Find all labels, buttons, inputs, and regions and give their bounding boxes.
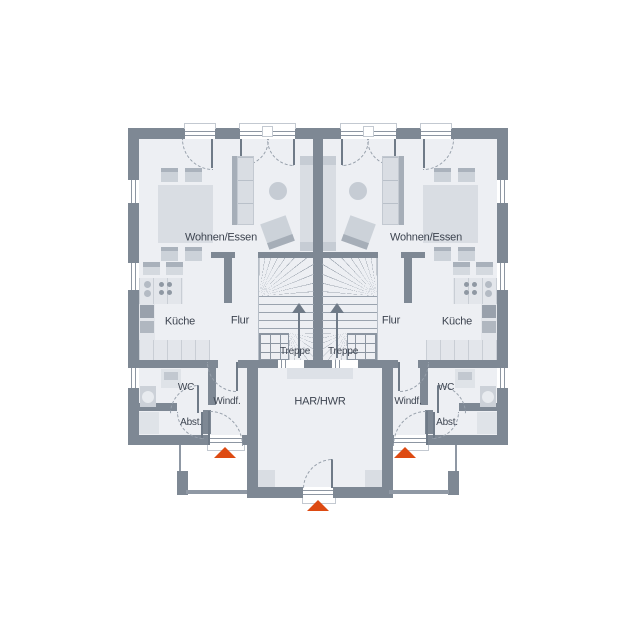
stove-burner	[159, 290, 164, 295]
stair-arrow-head	[292, 303, 306, 313]
wall-hall	[224, 258, 232, 303]
chair	[434, 247, 451, 261]
wall-hall	[404, 258, 412, 303]
wall	[497, 128, 508, 180]
sofa-armrest	[300, 242, 313, 251]
entrance-marker	[394, 447, 416, 458]
stair-treads	[259, 296, 314, 333]
stair-winder	[322, 258, 377, 296]
wall-vestibule	[418, 360, 497, 368]
shelf-cabinet	[382, 156, 399, 225]
side-table	[269, 182, 287, 200]
chair	[161, 247, 178, 261]
floor-plan: Wohnen/Essen Wohnen/Essen Küche Küche Fl…	[0, 0, 636, 636]
porch-edge	[186, 490, 247, 494]
room-label-kitchen-left: Küche	[165, 317, 195, 328]
wall-vestibule	[238, 360, 247, 368]
room-label-vestibule-left: Windf.	[213, 397, 240, 407]
window	[128, 263, 139, 290]
wall	[128, 128, 139, 180]
room-label-stairs-left: Treppe	[280, 347, 310, 357]
door-leaf	[426, 411, 428, 445]
room-label-stairs-right: Treppe	[328, 347, 358, 357]
storage-shelf	[477, 412, 497, 434]
window	[128, 368, 139, 388]
wall	[128, 290, 139, 368]
chair	[458, 168, 475, 182]
sink-basin	[485, 281, 492, 288]
utility-cupboard	[287, 368, 353, 379]
side-table	[349, 182, 367, 200]
room-label-living-left: Wohnen/Essen	[185, 233, 257, 244]
utility-opening	[332, 360, 358, 368]
shelf-side	[399, 156, 404, 225]
wall	[295, 128, 313, 139]
stove-burner	[159, 282, 164, 287]
bar-stool	[453, 262, 470, 275]
sofa	[323, 156, 336, 251]
sink-basin	[144, 290, 151, 297]
wall	[128, 203, 139, 263]
porch-edge	[455, 445, 457, 472]
washbasin-bowl	[164, 372, 178, 380]
bar-stool	[143, 262, 160, 275]
door-symbol	[363, 126, 374, 137]
chair	[161, 168, 178, 182]
stove-burner	[472, 290, 477, 295]
chair	[185, 168, 202, 182]
wall	[396, 128, 421, 139]
bar-stool	[476, 262, 493, 275]
stove-burner	[464, 290, 469, 295]
utility-unit-block	[258, 470, 275, 487]
staircase	[258, 258, 313, 360]
chair	[458, 247, 475, 261]
toilet-seat	[482, 391, 494, 403]
entrance-marker	[307, 500, 329, 511]
toilet-seat	[142, 391, 154, 403]
kitchen-counter	[139, 340, 210, 360]
stove-burner	[464, 282, 469, 287]
sink-basin	[144, 281, 151, 288]
sink-basin	[485, 290, 492, 297]
room-label-wc-right: WC	[438, 383, 454, 393]
sofa-armrest	[323, 242, 336, 251]
oven	[482, 305, 496, 318]
appliance	[140, 321, 154, 333]
utility-unit-block	[365, 470, 382, 487]
room-label-hall-left: Flur	[231, 316, 249, 327]
bar-stool	[166, 262, 183, 275]
terrace-door	[185, 128, 215, 139]
wall	[497, 290, 508, 368]
wall	[497, 203, 508, 263]
door-symbol	[262, 126, 273, 137]
window	[497, 263, 508, 290]
chair	[185, 247, 202, 261]
wall	[215, 128, 240, 139]
window	[128, 180, 139, 203]
terrace-door	[421, 128, 451, 139]
oven	[140, 305, 154, 318]
stair-arrow-head	[330, 303, 344, 313]
kitchen-counter	[426, 340, 497, 360]
room-label-kitchen-right: Küche	[442, 317, 472, 328]
utility-opening	[278, 360, 304, 368]
staircase	[323, 258, 378, 360]
sofa	[300, 156, 313, 251]
stove-burner	[472, 282, 477, 287]
window	[497, 180, 508, 203]
stair-winder	[259, 258, 314, 296]
entrance-marker	[214, 447, 236, 458]
porch-edge	[179, 445, 181, 472]
porch-pillar	[448, 471, 459, 495]
room-label-vestibule-right: Windf.	[394, 397, 421, 407]
window	[497, 368, 508, 388]
room-label-wc-left: WC	[178, 383, 194, 393]
room-label-storage-right: Abst.	[436, 418, 458, 428]
stove-burner	[167, 282, 172, 287]
wall	[323, 128, 341, 139]
porch-edge	[389, 490, 449, 494]
storage-shelf	[139, 412, 159, 434]
stove-burner	[167, 290, 172, 295]
washbasin-bowl	[458, 372, 472, 380]
chair	[434, 168, 451, 182]
appliance	[482, 321, 496, 333]
shelf-cabinet	[237, 156, 254, 225]
sofa-armrest	[300, 156, 313, 165]
room-label-living-right: Wohnen/Essen	[390, 233, 462, 244]
stair-treads	[322, 296, 377, 333]
sofa-armrest	[323, 156, 336, 165]
room-label-storage-left: Abst.	[180, 418, 202, 428]
room-label-utility: HAR/HWR	[294, 397, 345, 408]
room-label-hall-right: Flur	[382, 316, 400, 327]
